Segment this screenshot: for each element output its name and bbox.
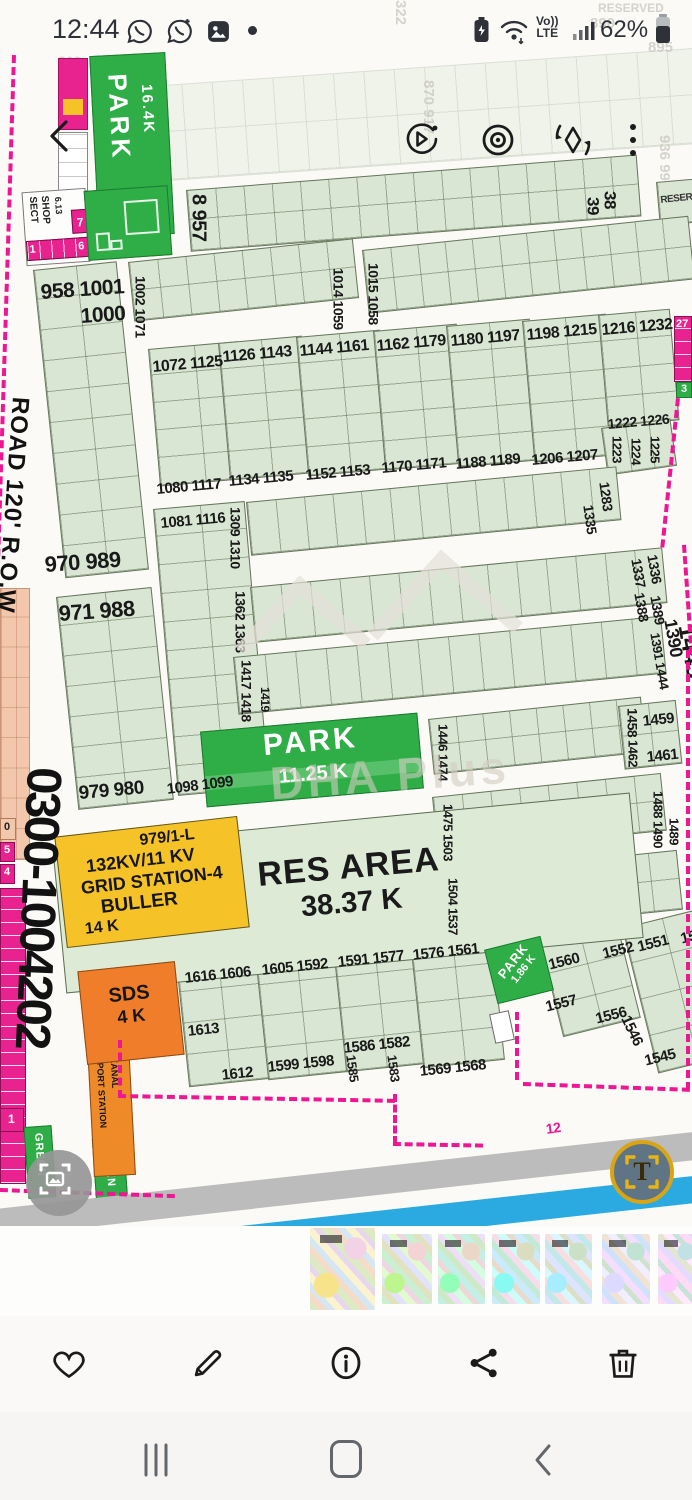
battery-percent: 62%	[600, 16, 648, 44]
thumbnail-5[interactable]	[545, 1234, 592, 1304]
sds-block: SDS 4 K	[77, 961, 184, 1065]
shop-cell-6: 6	[78, 240, 85, 252]
favorite-button[interactable]	[44, 1338, 94, 1391]
right-3: 3	[681, 383, 687, 395]
thumbnail-3[interactable]	[438, 1234, 485, 1304]
plot-number: 1613	[187, 1021, 220, 1039]
delete-button[interactable]	[598, 1338, 648, 1391]
road-row-label: ROAD 120' R.O.W	[0, 396, 34, 614]
lens-button[interactable]	[26, 1150, 92, 1216]
clock: 12:44	[52, 14, 120, 45]
boundary-dashed-line	[523, 1082, 690, 1092]
left-1-cell: 1	[0, 1108, 24, 1132]
thumbnail-6[interactable]	[602, 1234, 650, 1304]
plot-number: 1446 1474	[436, 724, 449, 781]
signal-icon	[572, 20, 598, 47]
share-button[interactable]	[459, 1338, 509, 1391]
text-extract-button[interactable]: T	[610, 1140, 674, 1204]
shop-cell-1: 1	[29, 243, 36, 255]
sector-shop-size: 6.13	[53, 196, 64, 214]
boundary-dashed-line	[393, 1094, 397, 1144]
plot-number: 1206 1207	[531, 447, 598, 468]
plot-number: 1309 1310	[228, 507, 242, 569]
plot-number: 1417 1418	[239, 660, 253, 722]
left-0: 0	[4, 821, 10, 833]
right-27: 27	[676, 318, 688, 330]
wifi-icon	[498, 17, 530, 50]
boundary-dashed-line	[393, 1142, 483, 1148]
shop-cell-row: 1 6	[26, 237, 89, 261]
thumbnail-strip	[0, 1226, 692, 1316]
plot-number: 1224	[629, 438, 642, 465]
thumbnail-4[interactable]	[492, 1234, 540, 1304]
plot-number: 1335	[581, 504, 599, 535]
plot-number: 971 988	[58, 598, 135, 626]
plot-number: 1225	[648, 436, 661, 463]
sector-park-block	[84, 185, 173, 261]
phone-number: 0300-1004202	[4, 766, 72, 1048]
plot-number: 1419	[259, 687, 271, 712]
sector-shop-label-2: SHOP	[39, 195, 52, 224]
plot-number: 1170 1171	[381, 455, 447, 476]
status-bar: 12:44 Vo)) LTE 62%	[0, 0, 692, 60]
plot-number: 1188 1189	[455, 451, 521, 472]
plot-number: 38	[601, 191, 618, 209]
grid-station-block: 979/1-L 132KV/11 KV GRID STATION-4 BULLE…	[54, 816, 249, 948]
ar-rotate-button[interactable]	[552, 120, 594, 163]
motion-photo-button[interactable]	[400, 118, 442, 163]
phone-screen: PARK 16.4K SECT SHOP 6.13 7 1 6 RESERVED	[0, 0, 692, 1500]
volte-indicator: Vo)) LTE	[536, 15, 558, 39]
more-menu-button[interactable]	[626, 118, 640, 165]
back-button[interactable]	[42, 114, 76, 161]
edit-button[interactable]	[183, 1338, 233, 1391]
plot-number: 1583	[385, 1054, 402, 1083]
plot-number: 1002 1071	[133, 276, 147, 338]
sector-shop-label-1: SECT	[27, 196, 40, 223]
plot-block	[428, 697, 647, 775]
plot-number: 1612	[221, 1065, 254, 1083]
plot-number: 1489	[667, 818, 680, 845]
left-1: 1	[8, 1112, 15, 1126]
sector-shop-block: SECT SHOP 6.13 7 1 6	[21, 188, 90, 266]
battery-icon	[654, 13, 672, 50]
left-5: 5	[4, 844, 10, 856]
plot-number: 1283	[597, 481, 615, 512]
plot-number: 1015 1058	[366, 263, 380, 325]
plot-number: 1546	[618, 1013, 646, 1048]
vision-eye-button[interactable]	[478, 120, 518, 163]
recents-button[interactable]	[136, 1440, 176, 1483]
plot-number: 1080 1117	[156, 476, 222, 497]
plot-number: 1458	[625, 708, 639, 737]
plot-number: 1462	[626, 740, 639, 767]
plot-number: 8 957	[188, 194, 208, 242]
boundary-dashed-line	[118, 1094, 395, 1103]
plot-number: 1014 1059	[331, 268, 345, 330]
thumbnail-2[interactable]	[382, 1234, 432, 1304]
right-commercial-strip: 27	[674, 316, 692, 382]
left-4: 4	[4, 866, 10, 878]
plot-number: 1461	[646, 747, 679, 765]
boundary-dashed-line	[515, 1012, 519, 1080]
plot-number: 1152 1153	[305, 462, 371, 483]
plot-number: 970 989	[44, 549, 121, 577]
svg-text:T: T	[633, 1157, 650, 1186]
navigation-bar	[0, 1412, 692, 1500]
plot-number: 1585	[344, 1054, 361, 1083]
whatsapp-icon	[126, 18, 153, 50]
thumbnail-1[interactable]	[310, 1228, 375, 1310]
boundary-dashed-line	[686, 650, 690, 1090]
boundary-dashed-line	[118, 1040, 122, 1098]
gallery-notification-icon	[206, 19, 231, 49]
right-3-cell: 3	[676, 382, 692, 398]
thumbnail-7[interactable]	[658, 1234, 692, 1304]
nav-back-button[interactable]	[528, 1440, 558, 1483]
plot-number: 1488 1490	[651, 791, 664, 848]
plot-number: 1459	[642, 711, 675, 729]
plot-block	[246, 466, 621, 555]
plot-number: 1000	[80, 303, 126, 327]
road-12-label: 12	[545, 1120, 561, 1136]
plot-number: 1223	[610, 436, 623, 463]
photo-view[interactable]: PARK 16.4K SECT SHOP 6.13 7 1 6 RESERVED	[0, 0, 692, 1230]
plot-number: 1134 1135	[228, 468, 294, 489]
plot-number: 39	[584, 197, 601, 215]
battery-saver-icon	[472, 16, 491, 49]
home-button[interactable]	[330, 1440, 362, 1478]
info-button[interactable]	[321, 1338, 371, 1391]
action-bar	[0, 1316, 692, 1412]
notification-dot	[248, 26, 257, 35]
whatsapp-call-icon	[166, 18, 193, 50]
gallery-toolbar	[0, 104, 692, 176]
